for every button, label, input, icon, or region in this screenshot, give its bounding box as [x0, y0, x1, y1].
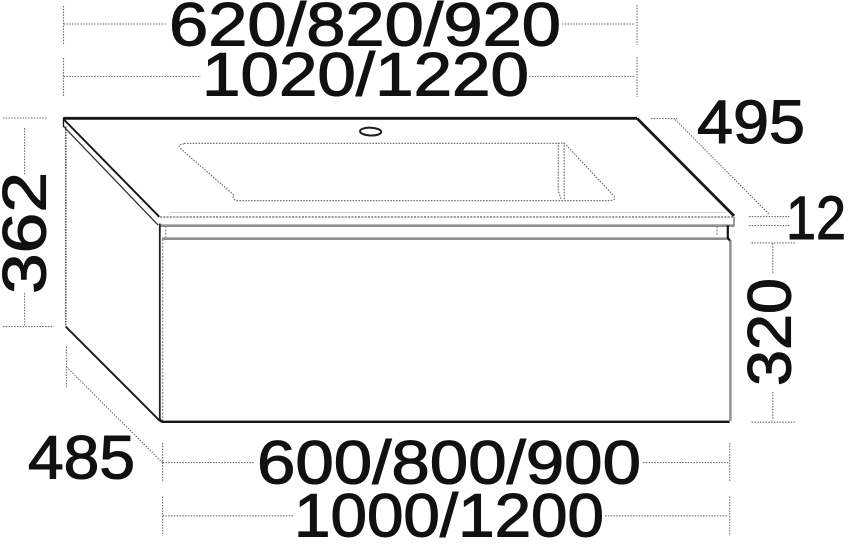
svg-text:1020/1220: 1020/1220 [202, 41, 529, 109]
svg-text:320: 320 [736, 278, 804, 386]
svg-text:12: 12 [786, 184, 846, 252]
svg-text:362: 362 [0, 172, 59, 294]
svg-text:1000/1200: 1000/1200 [294, 482, 604, 546]
svg-text:495: 495 [697, 88, 805, 156]
svg-text:485: 485 [28, 424, 135, 492]
